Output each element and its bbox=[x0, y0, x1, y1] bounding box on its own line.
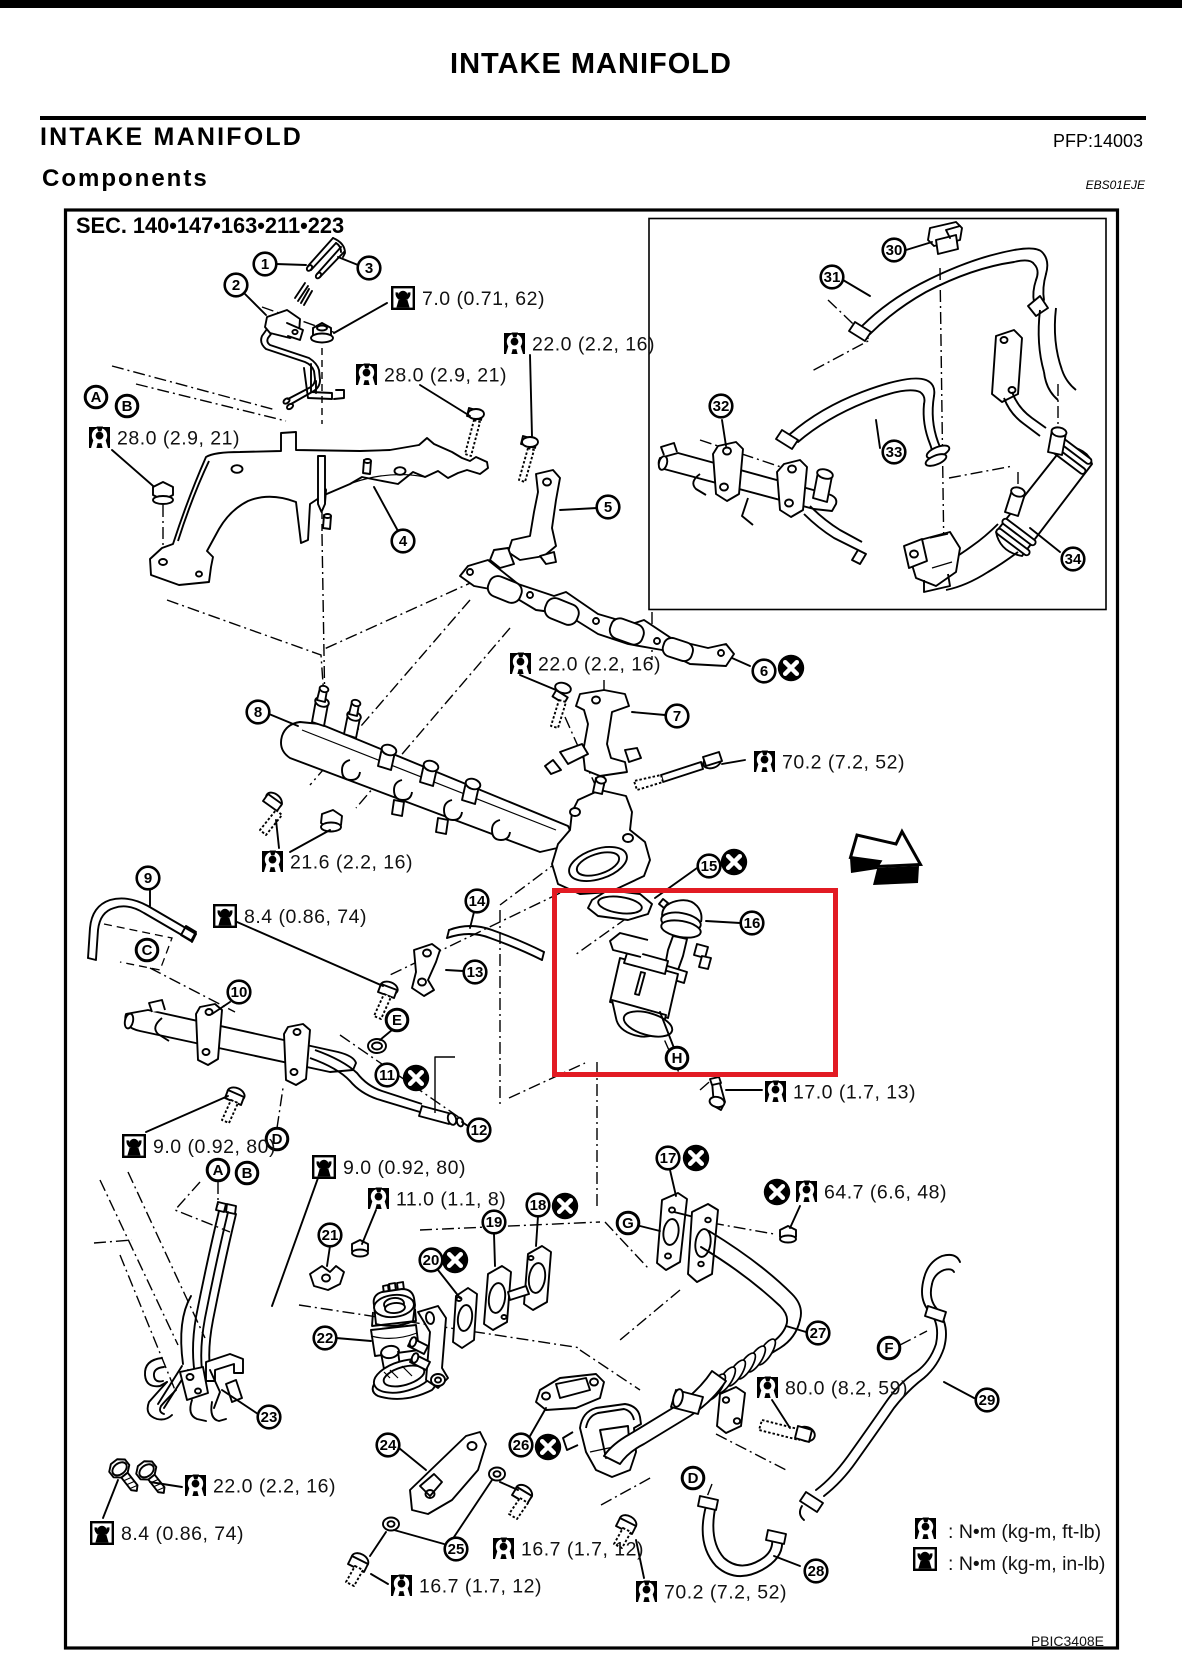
svg-text:8.4 (0.86, 74): 8.4 (0.86, 74) bbox=[121, 1523, 244, 1545]
svg-text:8: 8 bbox=[254, 704, 262, 721]
svg-text:31: 31 bbox=[824, 269, 841, 286]
svg-text:B: B bbox=[242, 1165, 253, 1182]
svg-text:17: 17 bbox=[660, 1150, 677, 1167]
svg-text:2: 2 bbox=[232, 277, 240, 294]
svg-text:70.2 (7.2, 52): 70.2 (7.2, 52) bbox=[782, 752, 905, 774]
svg-text:G: G bbox=[622, 1215, 634, 1232]
svg-text:A: A bbox=[91, 389, 102, 406]
svg-text:1: 1 bbox=[261, 256, 269, 273]
svg-text:H: H bbox=[672, 1050, 683, 1067]
svg-text:3: 3 bbox=[365, 260, 373, 277]
svg-text:11: 11 bbox=[379, 1067, 395, 1084]
svg-text:C: C bbox=[142, 942, 153, 959]
svg-text:28.0 (2.9, 21): 28.0 (2.9, 21) bbox=[117, 428, 240, 450]
svg-text:28: 28 bbox=[808, 1563, 825, 1580]
svg-text:D: D bbox=[688, 1470, 699, 1487]
svg-text:30: 30 bbox=[886, 242, 903, 259]
svg-text:18: 18 bbox=[530, 1197, 547, 1214]
svg-text:16.7 (1.7, 12): 16.7 (1.7, 12) bbox=[521, 1539, 644, 1561]
svg-text:9.0 (0.92, 80): 9.0 (0.92, 80) bbox=[153, 1136, 276, 1158]
svg-text:33: 33 bbox=[886, 444, 903, 461]
svg-text:28.0 (2.9, 21): 28.0 (2.9, 21) bbox=[384, 365, 507, 387]
svg-text:22: 22 bbox=[317, 1330, 334, 1347]
svg-text:64.7 (6.6, 48): 64.7 (6.6, 48) bbox=[824, 1182, 947, 1204]
svg-text:29: 29 bbox=[979, 1392, 996, 1409]
svg-text:22.0 (2.2, 16): 22.0 (2.2, 16) bbox=[213, 1476, 336, 1498]
svg-text:A: A bbox=[213, 1162, 224, 1179]
svg-text:9.0 (0.92, 80): 9.0 (0.92, 80) bbox=[343, 1157, 466, 1179]
svg-text:F: F bbox=[884, 1340, 893, 1357]
svg-text:27: 27 bbox=[810, 1325, 827, 1342]
svg-text:32: 32 bbox=[713, 398, 730, 415]
svg-text:21.6 (2.2, 16): 21.6 (2.2, 16) bbox=[290, 852, 413, 874]
svg-text:12: 12 bbox=[471, 1122, 488, 1139]
svg-text:11.0 (1.1, 8): 11.0 (1.1, 8) bbox=[396, 1189, 506, 1211]
svg-text:9: 9 bbox=[144, 870, 152, 887]
svg-text:34: 34 bbox=[1065, 551, 1082, 568]
svg-text:13: 13 bbox=[467, 964, 484, 981]
svg-text:20: 20 bbox=[423, 1252, 440, 1269]
svg-text:8.4 (0.86, 74): 8.4 (0.86, 74) bbox=[244, 906, 367, 928]
svg-text:E: E bbox=[392, 1012, 402, 1029]
svg-text:15: 15 bbox=[701, 858, 718, 875]
svg-text:: N•m (kg-m, ft-lb): : N•m (kg-m, ft-lb) bbox=[948, 1521, 1101, 1543]
svg-text:22.0 (2.2, 16): 22.0 (2.2, 16) bbox=[532, 334, 655, 356]
svg-text:SEC. 140•147•163•211•223: SEC. 140•147•163•211•223 bbox=[76, 213, 344, 238]
svg-text:22.0 (2.2, 16): 22.0 (2.2, 16) bbox=[538, 654, 661, 676]
svg-text:17.0 (1.7, 13): 17.0 (1.7, 13) bbox=[793, 1082, 916, 1104]
svg-text:70.2 (7.2, 52): 70.2 (7.2, 52) bbox=[664, 1582, 787, 1604]
svg-text:16.7 (1.7, 12): 16.7 (1.7, 12) bbox=[419, 1576, 542, 1598]
svg-text:PBIC3408E: PBIC3408E bbox=[1031, 1633, 1104, 1649]
svg-text:80.0 (8.2, 59): 80.0 (8.2, 59) bbox=[785, 1378, 908, 1400]
svg-text:19: 19 bbox=[486, 1214, 503, 1231]
svg-text:7.0 (0.71, 62): 7.0 (0.71, 62) bbox=[422, 288, 545, 310]
svg-text:: N•m (kg-m, in-lb): : N•m (kg-m, in-lb) bbox=[948, 1553, 1105, 1575]
svg-text:24: 24 bbox=[380, 1437, 397, 1454]
svg-text:23: 23 bbox=[261, 1409, 278, 1426]
svg-text:6: 6 bbox=[760, 663, 768, 680]
svg-text:5: 5 bbox=[604, 499, 612, 516]
svg-text:25: 25 bbox=[448, 1541, 465, 1558]
svg-text:B: B bbox=[122, 398, 133, 415]
svg-text:7: 7 bbox=[673, 708, 681, 725]
svg-text:10: 10 bbox=[231, 984, 248, 1001]
svg-text:21: 21 bbox=[322, 1227, 339, 1244]
svg-text:26: 26 bbox=[513, 1437, 530, 1454]
svg-text:4: 4 bbox=[399, 533, 408, 550]
svg-text:14: 14 bbox=[469, 893, 486, 910]
svg-text:16: 16 bbox=[744, 915, 761, 932]
